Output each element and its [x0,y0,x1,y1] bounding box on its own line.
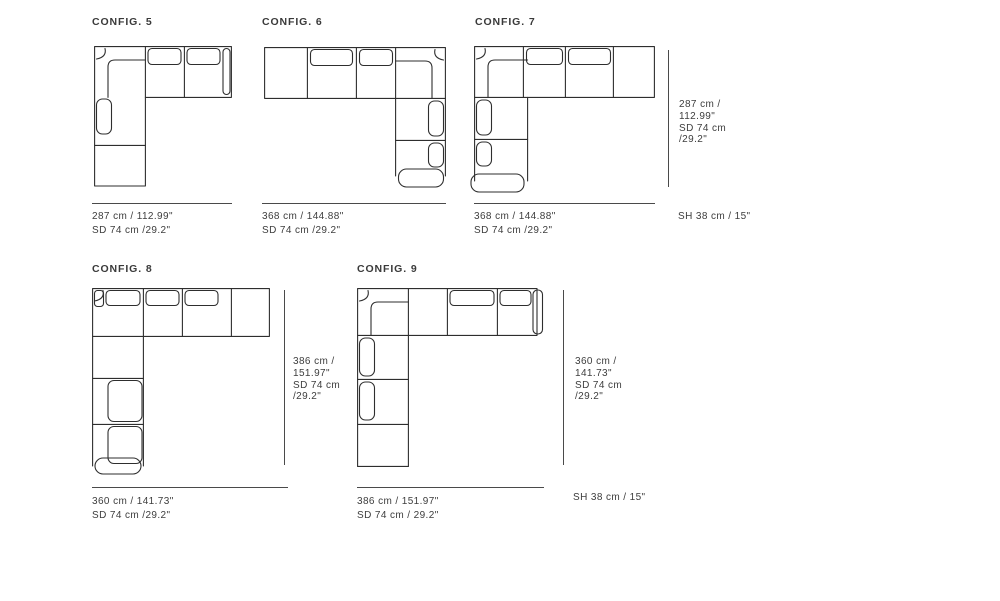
back-cushion [360,338,375,376]
config-8-vertical-dimension-line [284,290,285,465]
config-9-vertical-dimension-line [563,290,564,465]
sofa-outline [95,47,232,186]
seat-depth-label: SD 74 cm /29.2" [92,509,174,523]
config-6-dimension-line [262,203,446,204]
seat-cushion [108,381,142,422]
config-6-sofa-top-view-drawing [264,47,446,189]
depth-label-line: SD 74 cm [293,380,340,392]
corner-fold-line [360,291,369,302]
depth-label-line: 151.97" [293,368,340,380]
config-9-title: CONFIG. 9 [357,263,418,275]
width-label: 368 cm / 144.88" [262,210,344,224]
config-8-title: CONFIG. 8 [92,263,153,275]
corner-cushion-line [108,60,145,97]
config-9-side-dimension-labels: 360 cm / 141.73" SD 74 cm /29.2" [575,356,622,403]
config-9-dimension-line [357,487,544,488]
depth-label-line: SD 74 cm [575,380,622,392]
back-cushion [97,99,112,134]
armrest [223,49,230,95]
armrest [399,169,444,187]
config-5-dimension-line [92,203,232,204]
seat-height-label: SH 38 cm / 15" [573,491,646,505]
config-8-dimension-labels: 360 cm / 141.73" SD 74 cm /29.2" [92,495,174,522]
depth-label-line: /29.2" [293,391,340,403]
config-7-dimension-line [474,203,655,204]
back-cushion [146,291,179,306]
width-label: 360 cm / 141.73" [92,495,174,509]
back-cushion [148,49,181,65]
config-6-dimension-labels: 368 cm / 144.88" SD 74 cm /29.2" [262,210,344,237]
depth-label-line: /29.2" [575,391,622,403]
config-7-sofa-top-view-drawing [470,46,655,194]
config-8-side-dimension-labels: 386 cm / 151.97" SD 74 cm /29.2" [293,356,340,403]
corner-cushion-line [488,60,528,97]
sofa-outline [475,47,655,98]
seat-depth-label: SD 74 cm / 29.2" [357,509,439,523]
back-cushion [106,291,140,306]
config-9-sofa-top-view-drawing [357,288,544,468]
depth-label-line: SD 74 cm [679,123,726,135]
sofa-outline [265,48,446,99]
config-6-title: CONFIG. 6 [262,16,323,28]
width-label: 287 cm / 112.99" [92,210,173,224]
config-5-dimension-labels: 287 cm / 112.99" SD 74 cm /29.2" [92,210,173,237]
back-cushion [360,50,393,66]
back-cushion [477,142,492,166]
config-8-sofa-top-view-drawing [92,288,270,477]
sofa-outline [93,289,270,337]
config-7-dimension-labels: 368 cm / 144.88" SD 74 cm /29.2" [474,210,556,237]
corner-fold-line [477,49,486,60]
corner-cushion-line [396,61,432,98]
config-9-dimension-labels: 386 cm / 151.97" SD 74 cm / 29.2" [357,495,439,522]
corner-fold-line [435,50,444,61]
config-8-dimension-line [92,487,288,488]
back-cushion [311,50,353,66]
back-cushion [450,291,494,306]
depth-label-line: 141.73" [575,368,622,380]
config-7-side-dimension-labels: 287 cm / 112.99" SD 74 cm /29.2" [679,99,726,146]
seat-depth-label: SD 74 cm /29.2" [474,224,556,238]
corner-back-wrap [95,291,104,307]
width-label: 386 cm / 151.97" [357,495,439,509]
back-cushion [500,291,531,306]
armrest [471,174,524,192]
depth-label-line: 386 cm / [293,356,340,368]
back-cushion [527,49,563,65]
depth-label-line: 360 cm / [575,356,622,368]
armrest [533,290,543,334]
seat-height-label: SH 38 cm / 15" [678,210,751,224]
seat-depth-label: SD 74 cm /29.2" [262,224,344,238]
corner-fold-line [95,291,104,302]
config-5-sofa-top-view-drawing [94,46,232,187]
back-cushion [569,49,611,65]
config-5-title: CONFIG. 5 [92,16,153,28]
seat-depth-label: SD 74 cm /29.2" [92,224,173,238]
sofa-configuration-spec-sheet: CONFIG. 5 287 cm / 112.99" SD 74 cm /29.… [0,0,1000,601]
corner-cushion-line [371,302,408,335]
back-cushion [360,382,375,420]
config-7-vertical-dimension-line [668,50,669,187]
back-cushion [429,143,444,167]
width-label: 368 cm / 144.88" [474,210,556,224]
back-cushion [185,291,218,306]
depth-label-line: 287 cm / [679,99,726,111]
back-cushion [187,49,220,65]
depth-label-line: /29.2" [679,134,726,146]
back-cushion [429,101,444,136]
config-7-title: CONFIG. 7 [475,16,536,28]
depth-label-line: 112.99" [679,111,726,123]
corner-fold-line [97,49,106,60]
armrest [95,458,141,474]
back-cushion [477,100,492,135]
